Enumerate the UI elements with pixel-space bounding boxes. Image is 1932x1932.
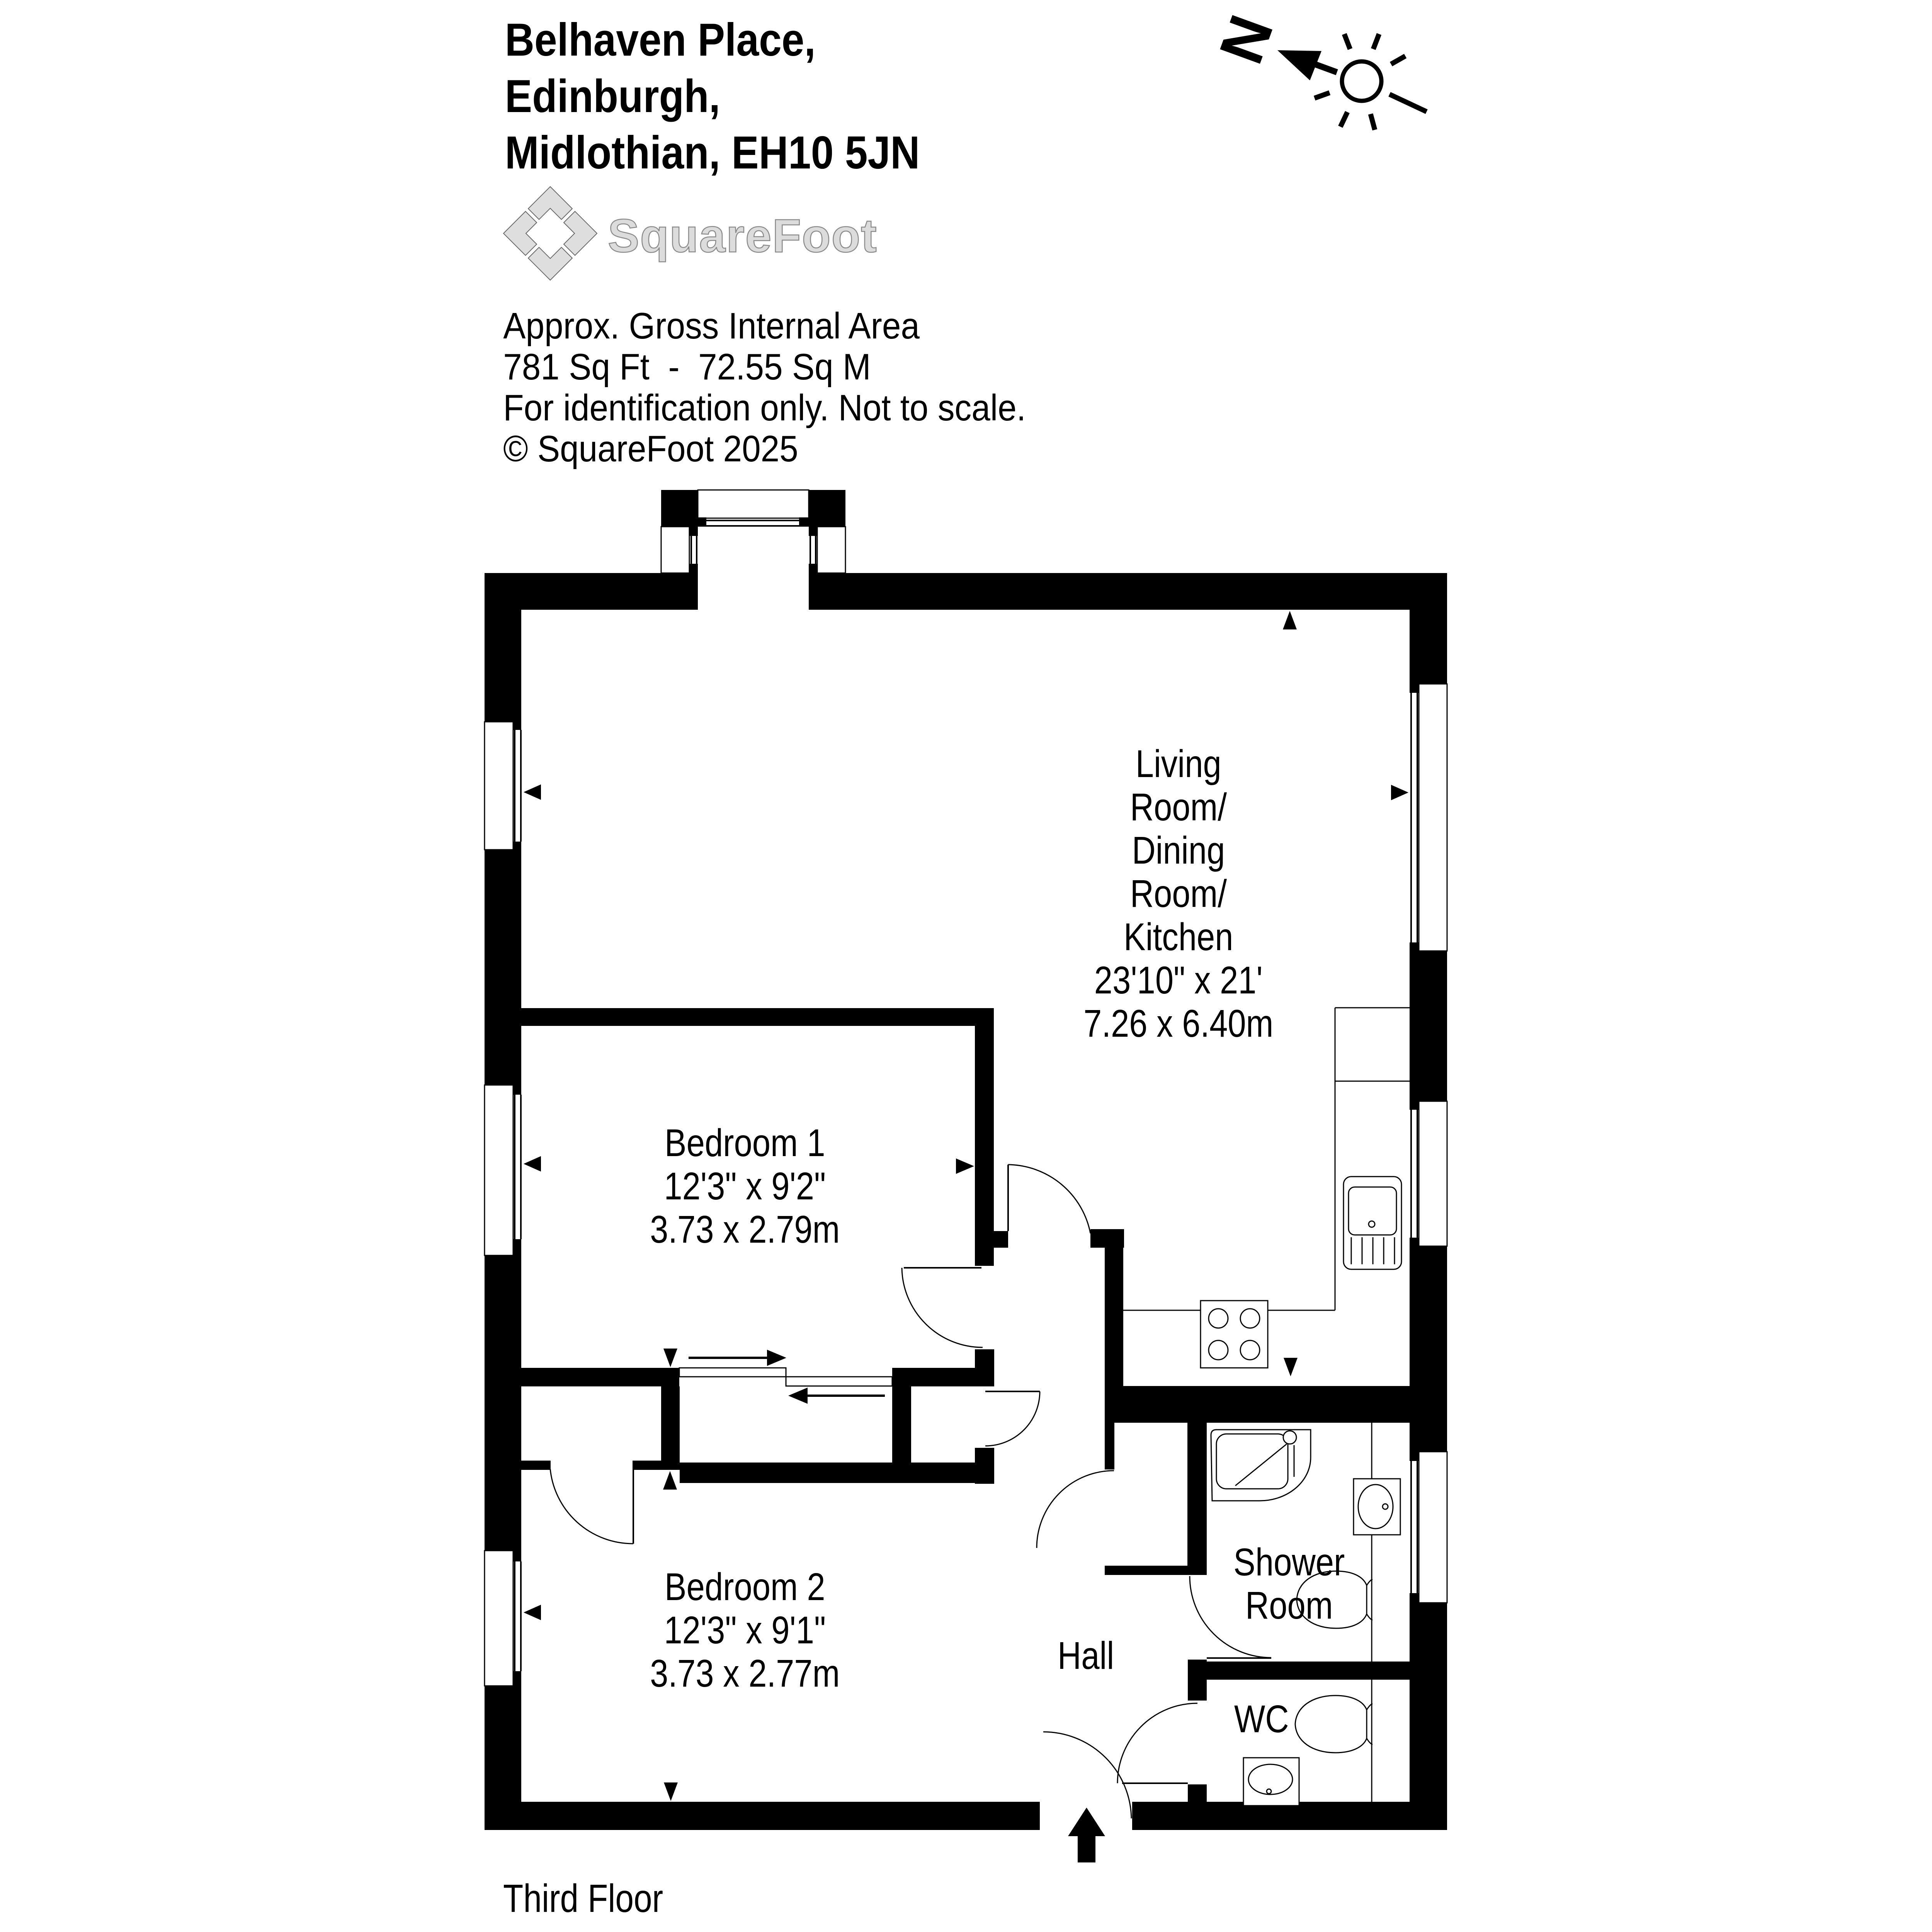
svg-text:23'10" x 21': 23'10" x 21' <box>1094 958 1263 1002</box>
svg-text:Shower: Shower <box>1233 1540 1345 1583</box>
svg-text:© SquareFoot 2025: © SquareFoot 2025 <box>503 428 798 469</box>
svg-text:For identification only. Not t: For identification only. Not to scale. <box>503 387 1026 429</box>
svg-text:Midlothian, EH10 5JN: Midlothian, EH10 5JN <box>505 127 920 179</box>
svg-text:Kitchen: Kitchen <box>1124 915 1233 958</box>
svg-text:3.73 x 2.79m: 3.73 x 2.79m <box>650 1207 840 1251</box>
svg-text:12'3" x 9'1": 12'3" x 9'1" <box>664 1608 826 1651</box>
svg-text:Belhaven Place,: Belhaven Place, <box>505 14 816 66</box>
svg-text:Edinburgh,: Edinburgh, <box>505 70 720 122</box>
svg-text:Bedroom 1: Bedroom 1 <box>665 1121 825 1164</box>
svg-text:SquareFoot: SquareFoot <box>608 209 878 262</box>
svg-text:12'3" x 9'2": 12'3" x 9'2" <box>664 1164 826 1207</box>
svg-text:WC: WC <box>1234 1697 1289 1740</box>
svg-text:Dining: Dining <box>1132 828 1225 872</box>
svg-text:Room/: Room/ <box>1130 872 1227 915</box>
svg-text:Bedroom 2: Bedroom 2 <box>665 1565 825 1608</box>
svg-text:7.26 x 6.40m: 7.26 x 6.40m <box>1083 1002 1273 1045</box>
svg-text:Third Floor: Third Floor <box>503 1876 663 1920</box>
svg-text:781 Sq Ft - 72.55 Sq M: 781 Sq Ft - 72.55 Sq M <box>503 346 871 388</box>
svg-text:Approx. Gross Internal Area: Approx. Gross Internal Area <box>503 305 920 347</box>
svg-text:Living: Living <box>1136 742 1221 785</box>
svg-text:Room: Room <box>1245 1583 1333 1627</box>
svg-text:3.73 x 2.77m: 3.73 x 2.77m <box>650 1651 840 1695</box>
svg-text:Room/: Room/ <box>1130 785 1227 828</box>
svg-text:Hall: Hall <box>1058 1634 1114 1677</box>
